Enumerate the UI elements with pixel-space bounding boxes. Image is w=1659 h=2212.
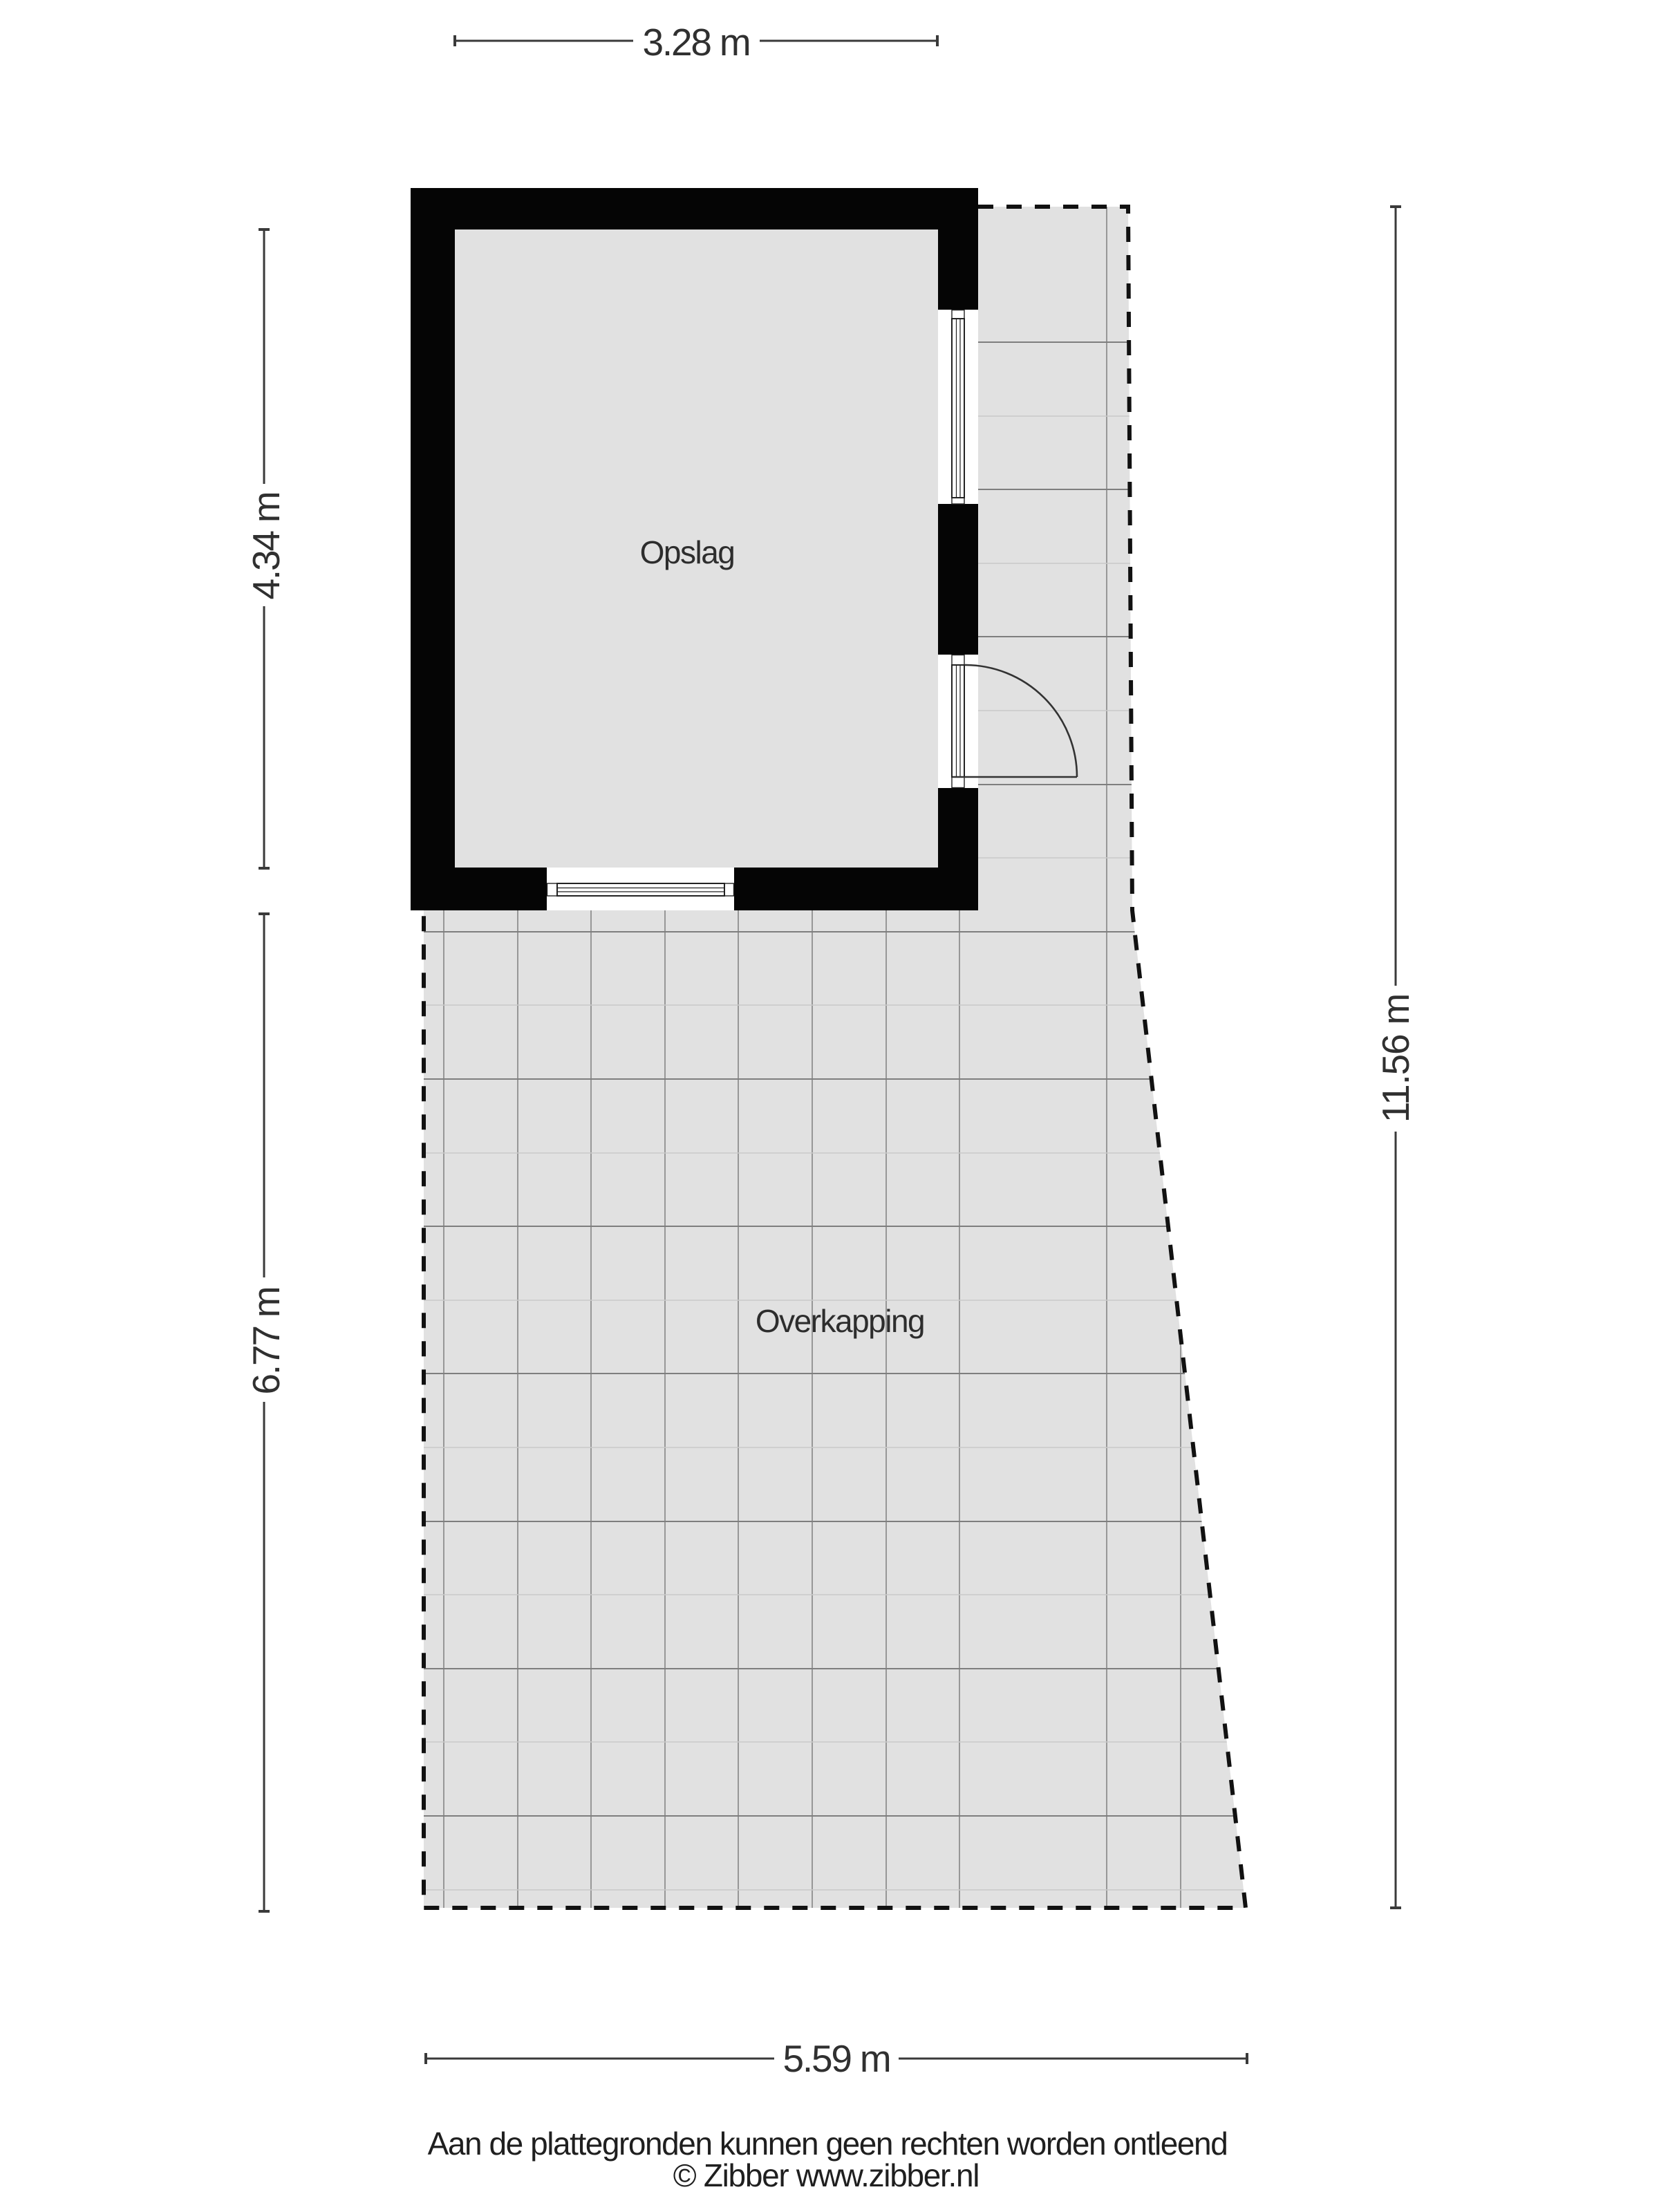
svg-text:Overkapping: Overkapping [756,1303,924,1339]
svg-text:Opslag: Opslag [640,534,735,570]
svg-text:© Zibber www.zibber.nl: © Zibber www.zibber.nl [673,2157,979,2193]
svg-text:11.56 m: 11.56 m [1374,994,1417,1123]
svg-text:Aan de plattegronden kunnen ge: Aan de plattegronden kunnen geen rechten… [428,2126,1228,2162]
svg-text:4.34 m: 4.34 m [245,493,288,600]
svg-text:3.28 m: 3.28 m [643,21,750,64]
svg-text:6.77 m: 6.77 m [245,1288,288,1395]
svg-text:5.59 m: 5.59 m [783,2037,890,2080]
